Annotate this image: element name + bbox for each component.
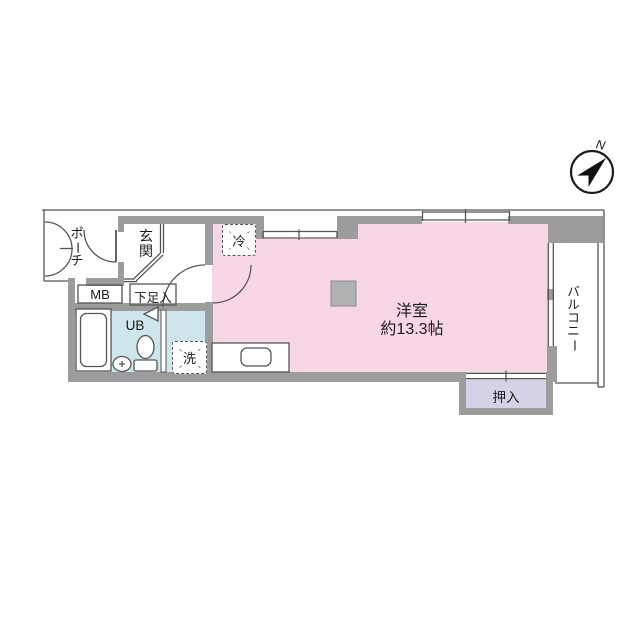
meter-box-label: MB xyxy=(78,287,122,302)
entrance-label: 玄関 xyxy=(138,229,154,258)
main-room-size: 約13.3帖 xyxy=(332,321,492,339)
toilet-tank xyxy=(134,360,157,371)
floorplan-drawing xyxy=(0,0,640,640)
main-room-name: 洋室 xyxy=(332,303,492,321)
porch-label: ポーチ xyxy=(69,227,85,268)
bath-partition-wall xyxy=(161,310,166,372)
bay-window-recess xyxy=(258,211,342,239)
closet-label: 押入 xyxy=(466,386,546,406)
shoe-cabinet-label: 下足入 xyxy=(128,287,178,306)
unit-bath-label: UB xyxy=(118,318,152,333)
floorplan-canvas: ポーチ 玄関 MB 下足入 UB 洗 冷 洋室 約13.3帖 押入 バルコニー … xyxy=(0,0,640,640)
balcony-label: バルコニー xyxy=(566,286,581,352)
washer-space: 洗 xyxy=(172,341,207,374)
closet-sliding-door xyxy=(466,371,546,382)
front-door xyxy=(84,230,116,262)
main-room-label: 洋室 約13.3帖 xyxy=(332,303,492,340)
fridge-label: 冷 xyxy=(231,231,246,250)
compass xyxy=(571,151,613,193)
fridge-space: 冷 xyxy=(222,224,256,256)
toilet-bowl xyxy=(137,336,154,359)
washer-label: 洗 xyxy=(182,348,197,367)
